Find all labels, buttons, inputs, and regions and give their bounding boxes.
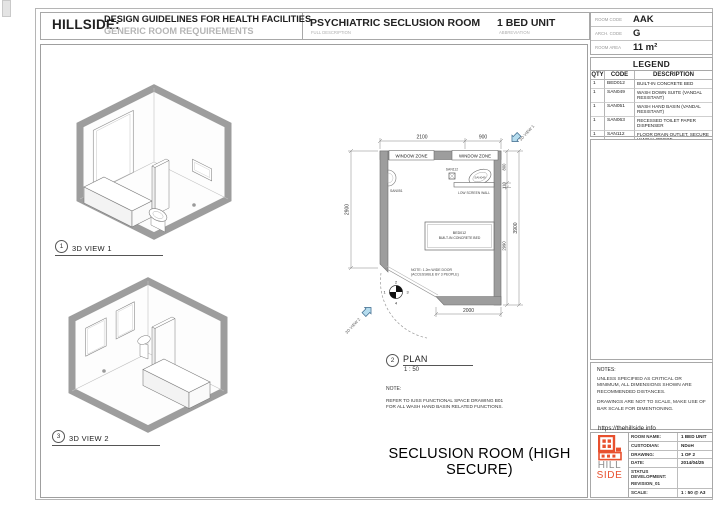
room-code-value: AAK [633, 14, 654, 25]
plan-scale: 1 : 50 [403, 367, 473, 373]
legend-row-code: BED012 [605, 80, 635, 89]
note-text: DRAWINGS ARE NOT TO SCALE, MAKE USE OF B… [597, 400, 706, 413]
tb-row-drawing: DRAWING: 1 OF 2 [629, 450, 712, 459]
legend-table: QTY CODE DESCRIPTION 1 BED012 BUILT-IN C… [591, 71, 712, 145]
unit-title: 1 BED UNIT [497, 17, 555, 29]
tb-row-status: STATUS DEVELOPMENT: [629, 467, 712, 480]
basin-plan: SAN051 [388, 170, 403, 193]
legend-col-qty: QTY [591, 71, 605, 80]
camera-arrow-icon [361, 304, 374, 317]
tb-label: ROOM NAME: [629, 433, 677, 441]
hillside-logo-icon [598, 435, 622, 461]
plan-number: 2 [386, 354, 399, 367]
room-area-value: 11 m² [633, 42, 657, 53]
tb-value: 1 : 50 @ A3 [677, 489, 712, 497]
dim-800: 800 [502, 163, 507, 171]
arch-code-label: ARCH. CODE [591, 31, 633, 36]
tb-value: 2014/04/25 [677, 459, 712, 467]
legend-title: LEGEND [591, 58, 712, 71]
dim-3900: 3900 [513, 222, 519, 233]
door-note-line2: (ACCESSIBLE BY 3 PEOPLE) [411, 273, 459, 277]
note-text: UNLESS SPECIFIED AS CRITICAL OR MINIMUM,… [597, 377, 706, 396]
room-title-caption: FULL DESCRIPTION [311, 30, 351, 35]
door [380, 266, 438, 338]
dim-2900: 2900 [345, 204, 351, 215]
tb-label: DATE: [629, 459, 677, 467]
room-area-row: ROOM AREA 11 m² [591, 41, 712, 54]
bottom-wall [436, 297, 501, 306]
floor-plan: WINDOW ZONE WINDOW ZONE 2100 900 2900 80… [335, 110, 585, 360]
view1-number: 1 [55, 240, 68, 253]
low-screen-wall-plan: LOW SCREEN WALL [454, 183, 494, 196]
dim-2100: 2100 [416, 135, 427, 141]
tb-value: NDoH [677, 442, 712, 450]
view2-tag-text: 3D VIEW 2 [344, 316, 362, 334]
bed-plan: BED012 BUILT-IN CONCRETE BED [425, 222, 494, 250]
tb-row-scale: SCALE: 1 : 50 @ A3 [629, 488, 712, 497]
footer-note-label: NOTE: [386, 386, 526, 392]
floor-drain-3d [102, 369, 106, 373]
compass-1: 1 [383, 291, 385, 295]
title-block-rows: ROOM NAME: 1 BED UNIT CUSTODIAN: NDoH DR… [629, 433, 712, 497]
view2-label: 3 3D VIEW 2 [52, 430, 160, 446]
view1-title: 3D VIEW 1 [72, 244, 112, 253]
view1-label: 1 3D VIEW 1 [55, 240, 163, 256]
tb-row-room-name: ROOM NAME: 1 BED UNIT [629, 433, 712, 441]
low-screen-wall-label: LOW SCREEN WALL [458, 191, 490, 195]
title-block: HILL SIDE ROOM NAME: 1 BED UNIT CUSTODIA… [590, 432, 713, 498]
tb-value: 1 OF 2 [677, 451, 712, 459]
iso-view-1 [48, 70, 260, 246]
compass-4: 4 [395, 302, 397, 306]
left-wall [380, 151, 388, 272]
logo-word-side: SIDE [597, 471, 623, 481]
legend-col-code: CODE [605, 71, 635, 80]
legend-row-qty: 1 [591, 117, 605, 131]
door-note: NOTE: 1.2m WIDE DOOR (ACCESSIBLE BY 3 PE… [411, 268, 459, 277]
floor-drain-3d [192, 203, 196, 207]
san112-label: SAN112 [446, 168, 458, 172]
compass-symbol: 2 1 3 4 [383, 281, 408, 306]
tb-row-date: DATE: 2014/04/25 [629, 458, 712, 467]
footer-note-line2: FOR ALL WASH HAND BASIN RELATED FUNCTION… [386, 404, 526, 410]
plan-title: PLAN [403, 354, 473, 366]
header-titles: DESIGN GUIDELINES FOR HEALTH FACILITIES … [104, 14, 311, 38]
view1-tag-text: 3D VIEW 1 [518, 123, 536, 141]
legend-row-qty: 1 [591, 89, 605, 103]
dim-110: 110 [502, 181, 507, 188]
bed-desc-label: BUILT-IN CONCRETE BED [439, 236, 481, 240]
view2-camera-tag: 3D VIEW 2 [344, 304, 374, 334]
plan-label: 2 PLAN 1 : 50 [386, 354, 473, 373]
tb-label: DRAWING: [629, 451, 677, 459]
notes-title: NOTES: [597, 367, 706, 373]
floor-drain-plan: SAN112 [446, 168, 458, 180]
tb-label: SCALE: [629, 489, 677, 497]
screen-wall-3d [152, 159, 169, 215]
room-code-row: ROOM CODE AAK [591, 13, 712, 27]
compass-2: 2 [395, 281, 397, 285]
room-area-label: ROOM AREA [591, 45, 633, 50]
door-swing-arc [380, 273, 427, 338]
right-wall [494, 151, 501, 305]
page-edge-artifact [2, 0, 11, 17]
view2-title: 3D VIEW 2 [69, 434, 109, 443]
room-title: PSYCHIATRIC SECLUSION ROOM [310, 17, 480, 29]
tb-row-revision: REVISION_01 [629, 480, 712, 488]
legend-row-code: SAN063 [605, 117, 635, 131]
compass-3: 3 [406, 291, 408, 295]
bed-code-label: BED012 [453, 231, 466, 235]
doc-subtitle: GENERIC ROOM REQUIREMENTS [104, 26, 311, 38]
san049-label: SAN049 [474, 175, 486, 179]
window-zone-label: WINDOW ZONE [396, 154, 428, 159]
san051-label: SAN051 [390, 189, 403, 193]
dim-2000: 2000 [463, 308, 474, 314]
view2-number: 3 [52, 430, 65, 443]
iso-view-2 [40, 265, 256, 435]
window-zone-label: WINDOW ZONE [459, 154, 491, 159]
notes-panel: NOTES: UNLESS SPECIFIED AS CRITICAL OR M… [590, 362, 713, 430]
tb-row-custodian: CUSTODIAN: NDoH [629, 441, 712, 450]
legend-row-qty: 1 [591, 103, 605, 117]
legend-row-desc: BUILT-IN CONCRETE BED [635, 80, 712, 89]
legend-row-desc: RECESSED TOILET PAPER DISPENSER [635, 117, 712, 131]
room-meta-table: ROOM CODE AAK ARCH. CODE G ROOM AREA 11 … [590, 12, 713, 55]
view1-camera-tag: 3D VIEW 1 [509, 123, 536, 144]
dim-900: 900 [479, 135, 488, 141]
tb-value [677, 468, 712, 480]
tb-label: STATUS DEVELOPMENT: [629, 468, 677, 480]
legend-row-desc: WASH HAND BASIN (VANDAL RESISTANT) [635, 103, 712, 117]
legend-panel: LEGEND QTY CODE DESCRIPTION 1 BED012 BUI… [590, 57, 713, 137]
tb-value [677, 480, 712, 488]
sheet-title: SECLUSION ROOM (HIGH SECURE) [362, 446, 597, 478]
footer-note: NOTE: REFER TO IUSS FUNCTIONAL SPACE DRA… [386, 386, 526, 410]
arch-code-row: ARCH. CODE G [591, 27, 712, 41]
arch-code-value: G [633, 28, 640, 39]
legend-row-qty: 1 [591, 80, 605, 89]
unit-caption: ABBREVIATION [499, 30, 530, 35]
door-note-line1: NOTE: 1.2m WIDE DOOR [411, 268, 453, 272]
dim-2990: 2990 [502, 241, 507, 251]
tb-value: 1 BED UNIT [677, 433, 712, 441]
legend-row-desc: WASH DOWN SUITE (VANDAL RESISTANT) [635, 89, 712, 103]
doc-title: DESIGN GUIDELINES FOR HEALTH FACILITIES [104, 14, 311, 26]
tb-label: CUSTODIAN: [629, 442, 677, 450]
legend-col-desc: DESCRIPTION [635, 71, 712, 80]
legend-row-code: SAN051 [605, 103, 635, 117]
tb-label: REVISION_01 [629, 480, 677, 488]
legend-row-code: SAN049 [605, 89, 635, 103]
spare-panel [590, 139, 713, 360]
room-code-label: ROOM CODE [591, 17, 633, 22]
